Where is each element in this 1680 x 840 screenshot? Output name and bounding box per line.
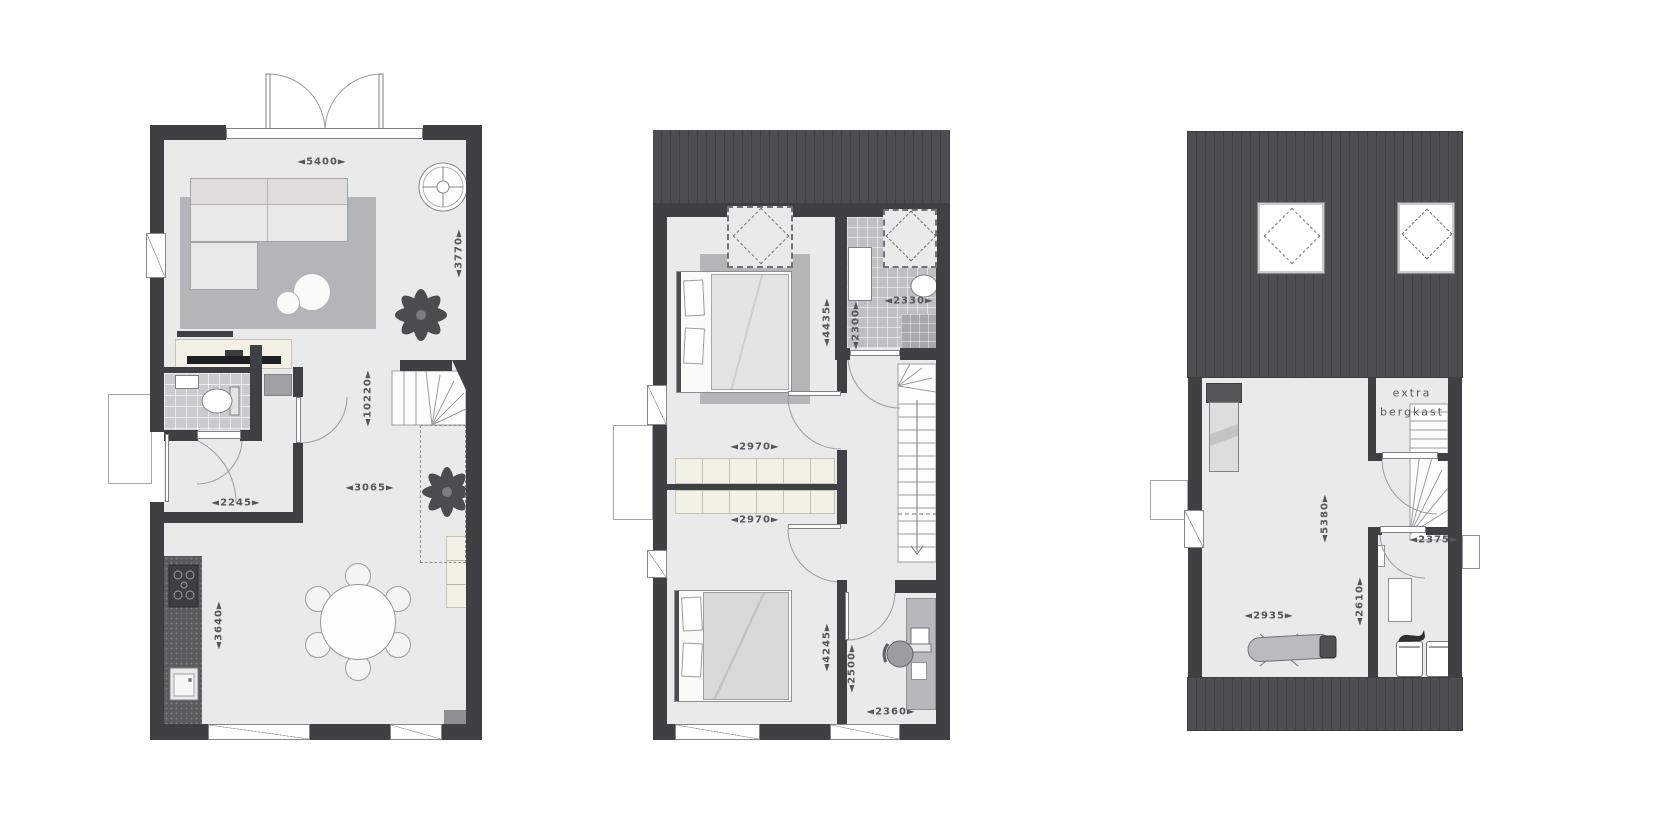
wall: [667, 484, 847, 490]
dim-label: ◄2935►: [1244, 611, 1293, 622]
dim-label: ◄3770►: [454, 228, 465, 277]
wall: [250, 345, 262, 430]
hall-closet-shelf: [264, 374, 292, 396]
wall: [164, 512, 303, 523]
tv-stand: [225, 350, 243, 356]
shower-floor: [901, 314, 936, 348]
dim-label: ◄2970►: [730, 515, 779, 526]
wall: [240, 430, 262, 441]
drying-rack-body: [1209, 402, 1239, 472]
sloped-roof-band: [653, 130, 950, 203]
wall: [164, 367, 262, 373]
wall: [653, 217, 667, 385]
side-table: [276, 291, 300, 315]
wall: [293, 443, 303, 512]
room-label-storage: extra: [1393, 387, 1432, 400]
wall: [653, 425, 667, 550]
wall: [150, 125, 226, 140]
duvet: [711, 274, 789, 390]
front-door-swing: [166, 433, 236, 503]
sofa: [190, 178, 348, 242]
wall: [760, 724, 830, 740]
washing-machine-panel: [1399, 646, 1420, 648]
bedroom2-door-swing: [788, 529, 841, 582]
dim-label: ◄2330►: [884, 296, 933, 307]
void-outline: [420, 425, 466, 563]
duvet: [703, 592, 789, 700]
wall: [310, 724, 390, 740]
bed: [674, 590, 792, 702]
wall: [1438, 453, 1462, 461]
wall: [1188, 548, 1202, 678]
wall: [1368, 377, 1376, 457]
wall: [900, 724, 950, 740]
sloped-roof-rear: [1188, 678, 1462, 730]
wardrobe: [675, 490, 835, 514]
front-door: [165, 434, 169, 502]
laundry-door: [1380, 526, 1426, 533]
wall: [1448, 377, 1462, 678]
dining-table: [320, 584, 396, 660]
wall: [150, 278, 164, 432]
bed: [676, 271, 792, 393]
sofa-chaise: [190, 242, 258, 290]
office-chair-icon: [882, 636, 916, 672]
bathroom-door-swing: [848, 356, 900, 408]
ironing-board-icon: [1246, 626, 1342, 668]
room-label-storage: bergkast: [1380, 406, 1444, 419]
floor-plan-sheet: ◄5400► ◄3770► ◄10220► ◄3065► ◄2245► ◄364…: [0, 0, 1680, 840]
dim-label: ◄3065►: [345, 483, 394, 494]
dryer-panel: [1429, 646, 1450, 648]
bathroom-washbasin: [848, 247, 872, 301]
wall: [837, 360, 847, 393]
dim-label: ◄4245►: [822, 622, 833, 671]
bedroom1-door: [788, 391, 841, 396]
wall: [164, 430, 198, 441]
dim-label: ◄2300►: [851, 300, 862, 349]
toilet-icon: [200, 385, 242, 417]
living-room-door: [296, 397, 301, 443]
dim-label: ◄2500►: [847, 643, 858, 692]
dim-label: ◄5400►: [297, 157, 346, 168]
dim-label: ◄10220►: [363, 369, 374, 426]
bedroom2-door: [788, 524, 841, 529]
sofa-back-cushion: [191, 179, 347, 205]
canopy-outline: [1150, 480, 1188, 520]
dim-label: ◄3640►: [214, 600, 225, 649]
dim-label: ◄4435►: [822, 297, 833, 346]
wall: [835, 217, 847, 348]
wall: [423, 125, 482, 140]
bedroom1-door-swing: [788, 396, 841, 449]
storage-closet-door: [1382, 452, 1438, 459]
ceiling-fan-icon: [417, 161, 469, 213]
dim-label: ◄2610►: [1355, 576, 1366, 625]
window: [390, 724, 442, 740]
plant-icon: [393, 283, 449, 347]
study-door: [845, 592, 849, 640]
wall: [400, 360, 452, 371]
wall: [442, 724, 482, 740]
canopy-outline: [613, 425, 653, 520]
pillow: [683, 328, 705, 365]
entrance-canopy-outline: [108, 394, 152, 484]
dim-label: ◄2360►: [866, 707, 915, 718]
shelf: [177, 331, 233, 337]
staircase: [898, 364, 936, 562]
window: [647, 385, 667, 425]
pillow: [681, 642, 703, 677]
wall: [1188, 377, 1202, 510]
wall: [466, 140, 482, 724]
window: [146, 233, 166, 278]
wall: [293, 367, 303, 397]
cat-icon: [1396, 628, 1426, 644]
sofa-seam: [267, 179, 268, 241]
staircase: [392, 371, 466, 425]
tv-screen: [187, 356, 281, 364]
wall: [150, 724, 208, 740]
living-room-door-swing: [301, 397, 348, 444]
window: [675, 724, 760, 740]
glass-sidelight: [226, 128, 423, 139]
dim-label: ◄2970►: [730, 442, 779, 453]
headboard: [677, 272, 681, 392]
bathroom-door: [850, 350, 900, 356]
wall: [900, 348, 950, 360]
washing-machine: [1396, 641, 1423, 677]
wall: [150, 502, 164, 724]
appliance-outline: [1462, 535, 1480, 569]
kitchen-sink-icon: [170, 668, 198, 700]
wall: [835, 348, 850, 360]
wardrobe: [675, 458, 835, 484]
wall: [1368, 453, 1382, 461]
cooktop-icon: [169, 565, 198, 607]
pillow: [683, 280, 705, 317]
wall: [936, 217, 950, 724]
study-door-swing: [847, 592, 895, 640]
wall: [150, 140, 164, 233]
wall: [653, 578, 667, 724]
pillow: [681, 596, 703, 631]
wall: [653, 724, 675, 740]
drying-rack: [1206, 383, 1242, 403]
wall: [895, 580, 936, 593]
window: [208, 724, 310, 740]
dim-label: ◄2375►: [1409, 535, 1458, 546]
window: [830, 724, 900, 740]
boiler-outline: [1388, 578, 1412, 622]
dim-label: ◄2245►: [211, 498, 260, 509]
headboard: [675, 591, 679, 701]
window: [647, 550, 667, 578]
storage-closet-door-swing: [1382, 459, 1437, 514]
washbasin: [175, 375, 199, 389]
window: [1184, 510, 1204, 548]
wall: [1368, 527, 1378, 678]
toilet-door: [197, 431, 241, 439]
dim-label: ◄5380►: [1320, 493, 1331, 542]
